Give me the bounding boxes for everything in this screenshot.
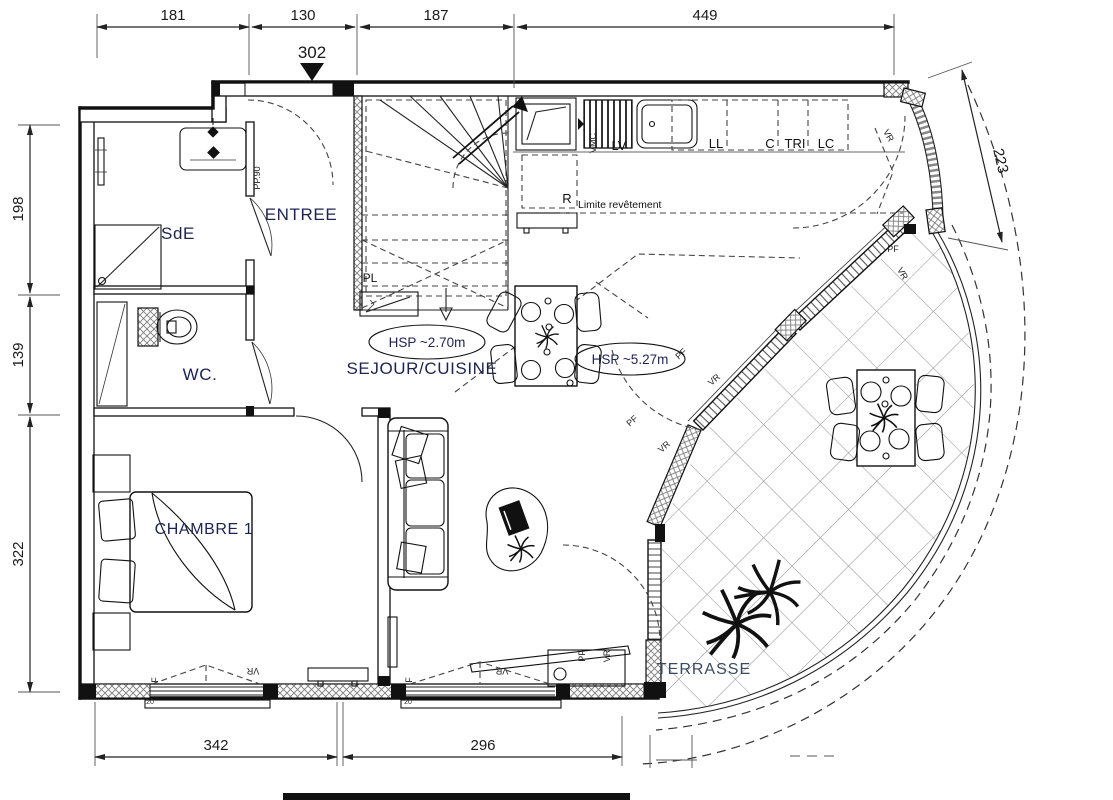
staircase: [360, 96, 528, 320]
room-label-terrasse: TERRASSE: [657, 661, 751, 678]
dining-chair: [574, 292, 601, 332]
label-lave-linge: LL: [709, 136, 723, 151]
label-placard: PL: [363, 271, 378, 285]
radiator: [308, 668, 368, 681]
partition-wc-chambre: [94, 408, 294, 416]
label-lave-vaisselle: LV: [612, 138, 627, 153]
bathroom-fixtures: [95, 118, 246, 406]
towel-radiator: [98, 138, 104, 185]
label-porte-palier: PP.90: [252, 166, 262, 189]
room-label-sde: SdE: [161, 224, 195, 243]
label-vr: VR: [246, 666, 259, 676]
label-vmc: VMC: [588, 133, 598, 154]
label-refrigerateur: R: [562, 191, 571, 206]
book-icon: [499, 500, 530, 536]
chambre-door-swing: [296, 416, 362, 482]
dim-bottom-342: 342: [203, 737, 228, 754]
toilet-tank: [138, 308, 158, 346]
label-sill: 20: [404, 699, 412, 706]
entry-marker-value: 302: [298, 43, 326, 62]
floor-plan-canvas: LV LL C TRI LC R VMC Limite revêtement: [0, 0, 1113, 800]
dining-set: [484, 286, 601, 386]
entry-door-opening: [245, 84, 333, 95]
room-label-entree: ENTREE: [265, 205, 338, 224]
label-limite-revetement: Limite revêtement: [578, 199, 662, 211]
label-pf: PF: [624, 413, 640, 428]
label-cellier: C: [765, 136, 774, 151]
room-label-chambre: CHAMBRE 1: [155, 521, 254, 538]
label-pf: PF: [577, 650, 587, 662]
room-label-sejour: SEJOUR/CUISINE: [346, 359, 497, 378]
dim-top-449: 449: [692, 7, 717, 24]
door-swing-arc: [563, 545, 660, 642]
top-left-wall: [80, 108, 226, 122]
label-f: F: [150, 677, 160, 683]
label-sill: 20: [146, 699, 154, 706]
left-wall: [80, 108, 94, 698]
dimension-top: 181 130 187 449: [97, 7, 894, 88]
wc-door-leaf: [252, 342, 270, 404]
bedroom-furniture: [93, 455, 368, 686]
dimension-bottom: 342 296: [95, 702, 836, 768]
cropped-bottom-bar: [283, 793, 630, 800]
hsp-double-value: HSP ~5.27m: [592, 352, 669, 367]
stair-winders: [380, 96, 508, 188]
label-vr: VR: [656, 439, 672, 455]
label-vr: VR: [495, 666, 508, 676]
console: [517, 213, 577, 228]
dim-left-139: 139: [10, 342, 27, 367]
sofa: [388, 418, 448, 590]
label-tri: TRI: [785, 136, 806, 151]
label-vr: VR: [881, 128, 896, 144]
stair-wall: [354, 96, 362, 310]
entry-marker-triangle-icon: [300, 63, 324, 81]
dim-left-322: 322: [10, 541, 27, 566]
stool: [554, 668, 566, 680]
label-vr: VR: [706, 372, 722, 388]
coffee-table: [486, 488, 548, 571]
dim-top-181: 181: [160, 7, 185, 24]
kitchen-sink: [637, 100, 697, 148]
dim-top-187: 187: [423, 7, 448, 24]
chambre-window: F VR 20: [145, 665, 270, 708]
stair-up-arrow: [453, 96, 528, 164]
hsp-sejour-value: HSP ~2.70m: [389, 335, 466, 350]
dim-left-198: 198: [10, 196, 27, 221]
dimension-left: 198 139 322: [10, 125, 60, 692]
dim-right-223: 223: [989, 147, 1011, 175]
label-f: F: [404, 677, 414, 683]
kitchen: LV LL C TRI LC R VMC Limite revêtement: [513, 98, 905, 233]
partition-sde-wc: [94, 286, 254, 294]
room-label-wc: WC.: [183, 365, 218, 384]
entry-marker: 302: [298, 43, 326, 81]
dim-top-130: 130: [290, 7, 315, 24]
dim-bottom-296: 296: [470, 737, 495, 754]
nightstand: [93, 613, 130, 650]
floor-plan-page: LV LL C TRI LC R VMC Limite revêtement: [0, 0, 1113, 800]
label-vr: VR: [602, 649, 612, 662]
label-lave-chauffe: LC: [818, 136, 835, 151]
nightstand: [93, 455, 130, 492]
plant-icon: [508, 536, 535, 563]
label-pf: PF: [887, 244, 899, 254]
bed: [130, 492, 252, 612]
